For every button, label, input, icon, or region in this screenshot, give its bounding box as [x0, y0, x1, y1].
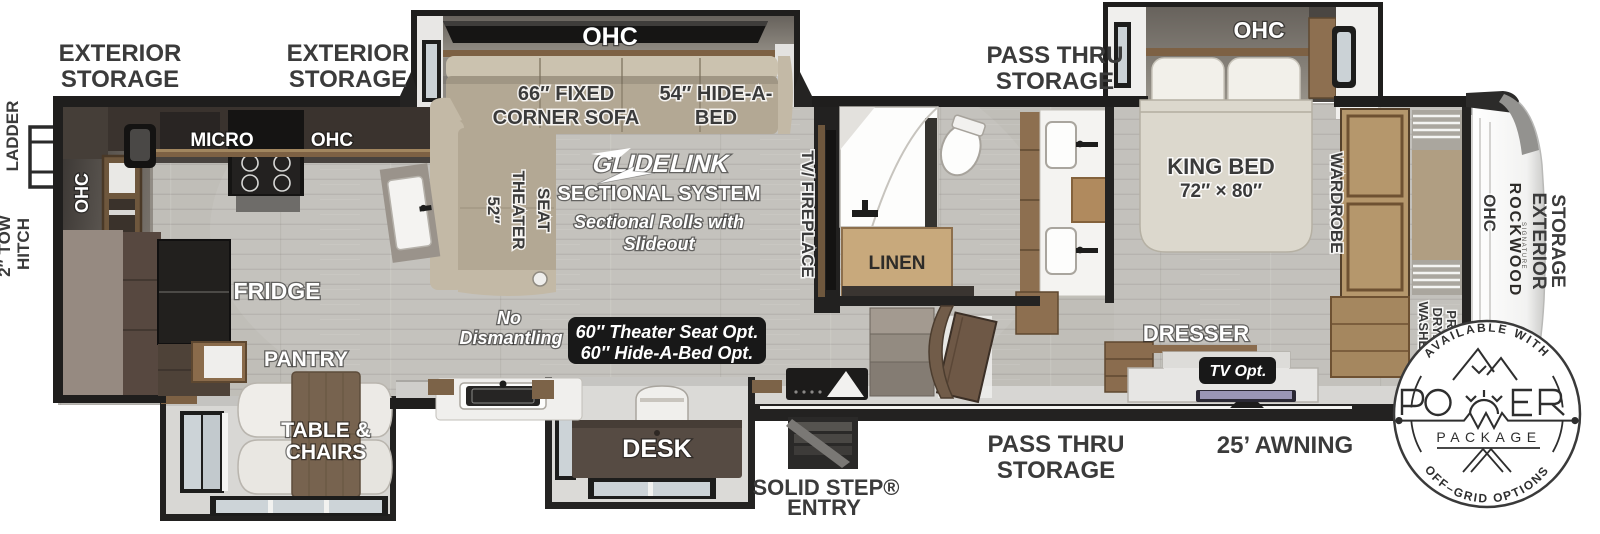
svg-text:WARDROBE: WARDROBE: [1327, 152, 1346, 253]
svg-text:OHC: OHC: [72, 173, 92, 213]
svg-text:LADDER: LADDER: [3, 101, 22, 172]
svg-text:No: No: [497, 308, 521, 328]
svg-text:STORAGE: STORAGE: [1547, 194, 1568, 288]
svg-text:SIGNATURE: SIGNATURE: [1520, 222, 1526, 270]
svg-text:PANTRY: PANTRY: [264, 348, 348, 371]
svg-text:SEAT: SEAT: [534, 188, 553, 233]
svg-text:Slideout: Slideout: [624, 234, 696, 254]
svg-text:SECTIONAL SYSTEM: SECTIONAL SYSTEM: [558, 183, 761, 205]
svg-text:CHAIRS: CHAIRS: [286, 441, 367, 464]
svg-text:2″ TOW: 2″ TOW: [0, 214, 14, 277]
svg-text:OHC: OHC: [311, 130, 354, 151]
svg-text:OHC: OHC: [582, 23, 638, 51]
svg-text:THEATER: THEATER: [509, 170, 528, 249]
svg-text:PACKAGE: PACKAGE: [1436, 429, 1541, 445]
svg-text:TV/ FIREPLACE: TV/ FIREPLACE: [798, 150, 817, 278]
svg-text:STORAGE: STORAGE: [997, 457, 1115, 484]
svg-text:60″ Theater Seat Opt.: 60″ Theater Seat Opt.: [576, 322, 759, 342]
svg-text:25’ AWNING: 25’ AWNING: [1217, 432, 1353, 459]
svg-text:Dismantling: Dismantling: [459, 328, 562, 348]
svg-text:TV Opt.: TV Opt.: [1210, 363, 1267, 380]
svg-text:60″ Hide-A-Bed Opt.: 60″ Hide-A-Bed Opt.: [581, 343, 754, 363]
svg-text:HITCH: HITCH: [14, 218, 33, 270]
svg-text:EXTERIOR: EXTERIOR: [59, 40, 182, 67]
svg-text:BED: BED: [695, 107, 737, 129]
svg-text:ENTRY: ENTRY: [787, 495, 861, 520]
svg-text:STORAGE: STORAGE: [996, 68, 1114, 95]
svg-text:STORAGE: STORAGE: [289, 66, 407, 93]
svg-text:LINEN: LINEN: [869, 253, 926, 274]
svg-text:CORNER SOFA: CORNER SOFA: [493, 107, 640, 129]
svg-text:OHC: OHC: [1480, 194, 1499, 232]
svg-text:KING BED: KING BED: [1167, 154, 1275, 179]
svg-text:54″ HIDE-A-: 54″ HIDE-A-: [660, 83, 773, 105]
svg-text:EXTERIOR: EXTERIOR: [1528, 192, 1549, 289]
svg-text:66″ FIXED: 66″ FIXED: [518, 83, 614, 105]
svg-text:STORAGE: STORAGE: [61, 66, 179, 93]
svg-text:PASS THRU: PASS THRU: [987, 42, 1124, 69]
svg-text:52″: 52″: [484, 196, 503, 223]
svg-text:72″ × 80″: 72″ × 80″: [1180, 181, 1262, 202]
svg-text:TABLE &: TABLE &: [281, 419, 370, 442]
svg-text:EXTERIOR: EXTERIOR: [287, 40, 410, 67]
svg-text:DRESSER: DRESSER: [1143, 321, 1249, 346]
svg-text:PASS THRU: PASS THRU: [988, 431, 1125, 458]
svg-text:FRIDGE: FRIDGE: [234, 278, 321, 304]
svg-text:OHC: OHC: [1233, 17, 1284, 43]
svg-text:MICRO: MICRO: [190, 130, 253, 151]
svg-text:DESK: DESK: [622, 435, 691, 463]
svg-text:Sectional Rolls with: Sectional Rolls with: [574, 212, 744, 232]
